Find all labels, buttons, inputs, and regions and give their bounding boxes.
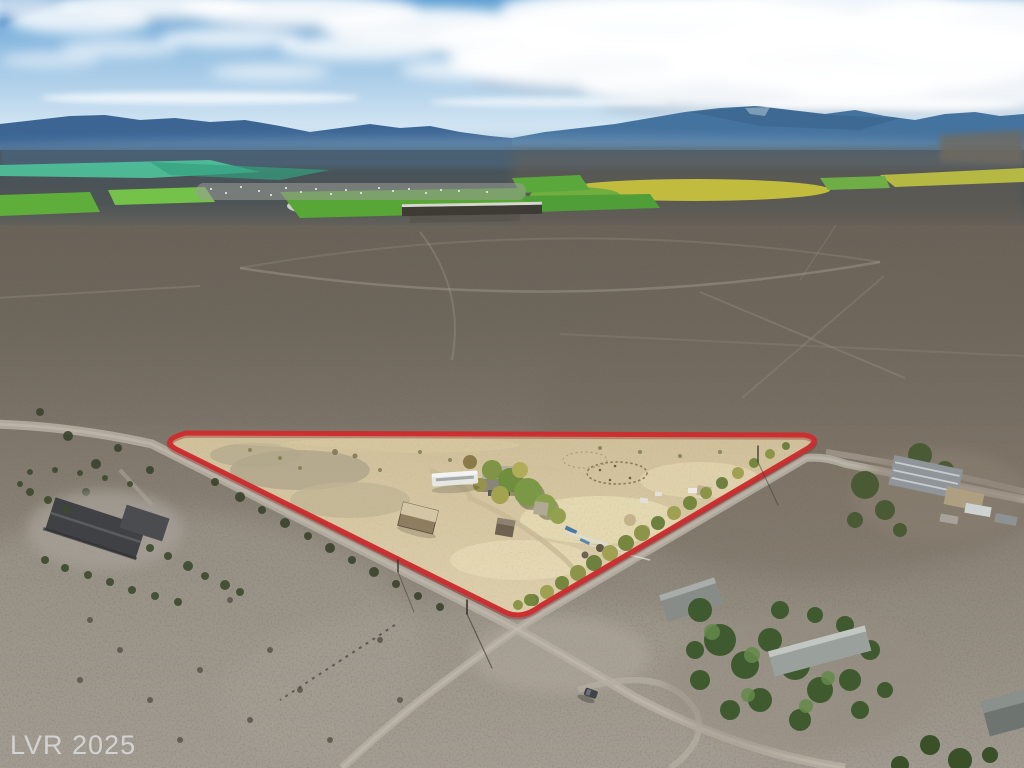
photo-canvas xyxy=(0,0,1024,768)
shed-small xyxy=(495,518,516,538)
town-strip xyxy=(196,183,526,200)
shed-small-2 xyxy=(533,501,549,516)
aerial-property-photo: LVR 2025 xyxy=(0,0,1024,768)
valley-floor xyxy=(0,130,1024,238)
